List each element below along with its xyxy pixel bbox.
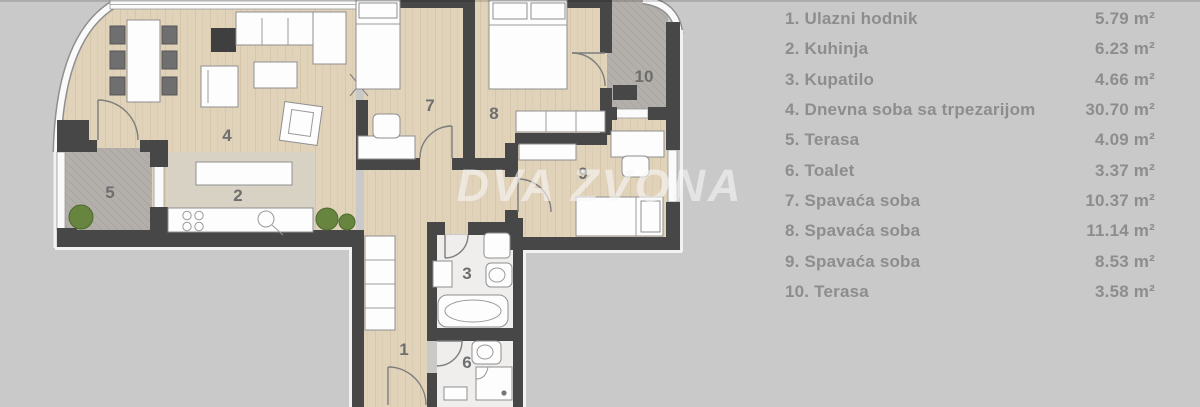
legend-row-4: 4. Dnevna soba sa trpezarijom 30.70 m² [785, 95, 1155, 125]
toilet-room3 [486, 263, 512, 287]
room-label-4: 4 [222, 126, 232, 145]
washing-machine [433, 261, 452, 287]
legend-area: 6.23 m² [1095, 39, 1155, 59]
bathtub [438, 295, 508, 327]
room-label-3: 3 [462, 264, 471, 283]
kitchen-island [196, 162, 292, 185]
legend-area: 30.70 m² [1085, 100, 1155, 120]
legend-row-5: 5. Terasa 4.09 m² [785, 125, 1155, 155]
kitchen-counter [168, 208, 313, 235]
legend-label: 1. Ulazni hodnik [785, 9, 918, 29]
room-label-1: 1 [399, 340, 408, 359]
legend-row-1: 1. Ulazni hodnik 5.79 m² [785, 4, 1155, 34]
coffee-table [254, 62, 297, 88]
bed-room8 [489, 0, 567, 89]
room-label-8: 8 [489, 104, 498, 123]
closet-corridor [365, 236, 395, 330]
shower [476, 367, 512, 400]
dresser-room9 [519, 144, 576, 160]
room-label-6: 6 [462, 353, 471, 372]
legend-label: 6. Toalet [785, 161, 855, 181]
plant-icon [316, 208, 338, 230]
legend-row-2: 2. Kuhinja 6.23 m² [785, 34, 1155, 64]
legend-row-8: 8. Spavaća soba 11.14 m² [785, 216, 1155, 246]
legend-row-7: 7. Spavaća soba 10.37 m² [785, 186, 1155, 216]
bed-room7 [356, 0, 400, 89]
legend-label: 10. Terasa [785, 282, 869, 302]
legend-label: 2. Kuhinja [785, 39, 868, 59]
chair-room7 [373, 114, 400, 138]
room-legend: 1. Ulazni hodnik 5.79 m² 2. Kuhinja 6.23… [785, 4, 1155, 307]
plant-icon [339, 214, 355, 230]
dining-table [127, 20, 160, 102]
legend-label: 9. Spavaća soba [785, 252, 920, 272]
legend-area: 4.09 m² [1095, 130, 1155, 150]
legend-label: 5. Terasa [785, 130, 859, 150]
legend-row-6: 6. Toalet 3.37 m² [785, 155, 1155, 185]
dining-set [110, 20, 177, 102]
window-terrace5 [57, 152, 65, 230]
image-top-edge [0, 0, 1200, 2]
legend-area: 4.66 m² [1095, 70, 1155, 90]
room-label-10: 10 [635, 67, 654, 86]
room-label-7: 7 [425, 96, 434, 115]
tv-cabinet [211, 28, 236, 52]
legend-label: 4. Dnevna soba sa trpezarijom [785, 100, 1036, 120]
plant-icon [69, 205, 93, 229]
room-label-2: 2 [233, 186, 242, 205]
legend-label: 8. Spavaća soba [785, 221, 920, 241]
toilet-room6 [472, 341, 501, 364]
room-label-5: 5 [105, 183, 114, 202]
legend-area: 8.53 m² [1095, 252, 1155, 272]
legend-label: 3. Kupatilo [785, 70, 874, 90]
window-kitchen-terrace [154, 166, 164, 208]
legend-area: 3.58 m² [1095, 282, 1155, 302]
legend-area: 3.37 m² [1095, 161, 1155, 181]
desk-room7 [358, 136, 415, 159]
legend-row-10: 10. Terasa 3.58 m² [785, 277, 1155, 307]
armchair [201, 66, 238, 107]
legend-area: 11.14 m² [1086, 221, 1155, 241]
legend-row-3: 3. Kupatilo 4.66 m² [785, 65, 1155, 95]
desk-room9 [611, 131, 664, 157]
sofa-chaise [313, 12, 346, 64]
legend-area: 5.79 m² [1095, 9, 1155, 29]
sink-room6 [444, 387, 467, 400]
armchair-2 [279, 102, 322, 146]
floor-plan: 1 2 3 4 5 6 7 8 9 10 DVA ZVONA [0, 0, 740, 407]
legend-row-9: 9. Spavaća soba 8.53 m² [785, 246, 1155, 276]
legend-area: 10.37 m² [1085, 191, 1155, 211]
washbasin-cabinet [484, 233, 510, 258]
screenshot-root: 1 2 3 4 5 6 7 8 9 10 DVA ZVONA 1. Ulazni… [0, 0, 1200, 407]
watermark-text: DVA ZVONA [456, 160, 740, 211]
legend-label: 7. Spavaća soba [785, 191, 920, 211]
wardrobe-room8 [516, 111, 605, 132]
